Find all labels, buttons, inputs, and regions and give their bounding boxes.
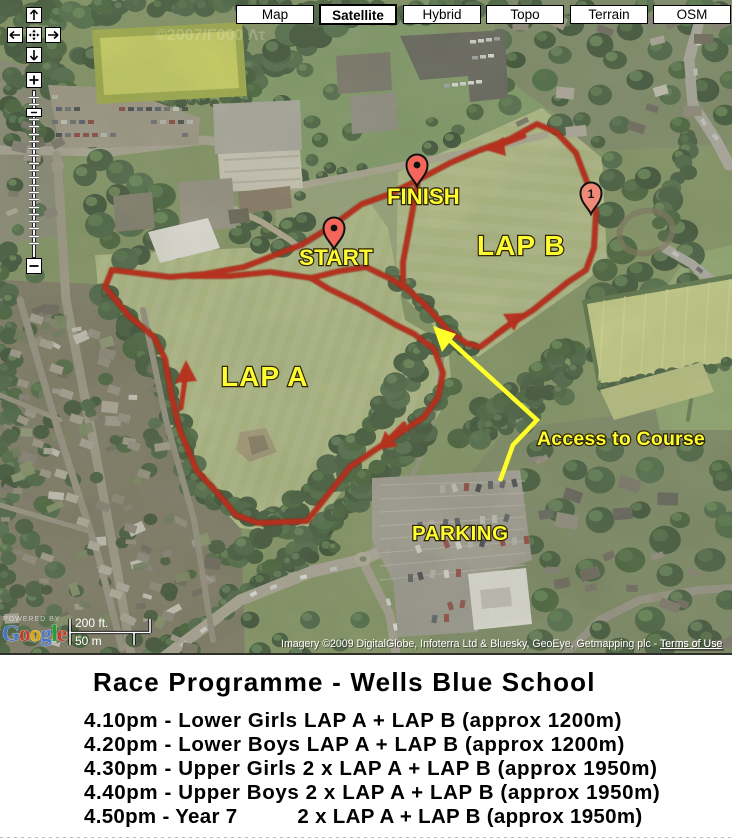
svg-text:LAP B: LAP B bbox=[477, 230, 566, 261]
svg-text:Imagery ©2009 DigitalGlobe, In: Imagery ©2009 DigitalGlobe, Infoterra Lt… bbox=[281, 638, 722, 650]
svg-text:LAP A: LAP A bbox=[221, 361, 308, 392]
svg-text:200 ft.: 200 ft. bbox=[75, 616, 108, 630]
svg-text:Google: Google bbox=[2, 621, 67, 646]
svg-text:50 m: 50 m bbox=[75, 634, 102, 648]
svg-text:START: START bbox=[299, 245, 373, 270]
svg-text:1: 1 bbox=[588, 187, 595, 201]
svg-text:PARKING: PARKING bbox=[412, 522, 509, 545]
svg-text:©2007/Γ000 Λτ: ©2007/Γ000 Λτ bbox=[155, 27, 265, 44]
svg-text:Access to Course: Access to Course bbox=[537, 428, 705, 450]
svg-text:FINISH: FINISH bbox=[387, 184, 460, 209]
